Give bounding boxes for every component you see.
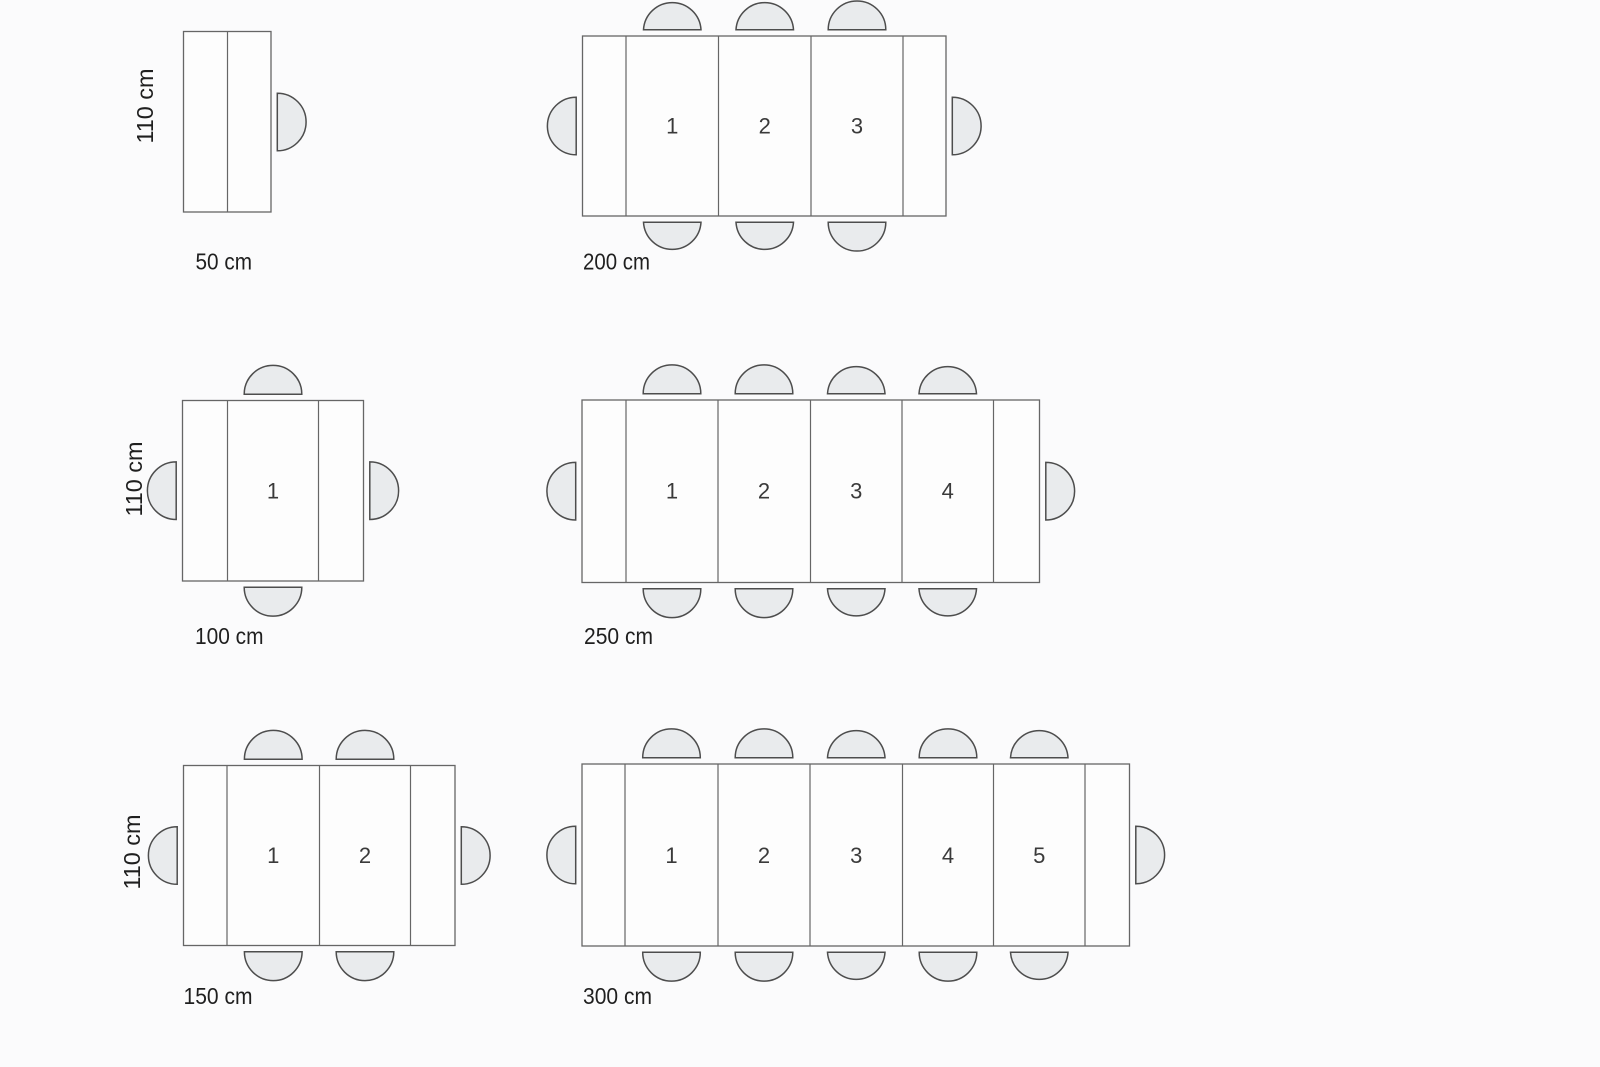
svg-text:200 cm: 200 cm bbox=[583, 249, 650, 275]
svg-text:1: 1 bbox=[666, 114, 678, 139]
svg-text:4: 4 bbox=[942, 843, 954, 868]
svg-text:250 cm: 250 cm bbox=[584, 623, 653, 649]
svg-text:1: 1 bbox=[267, 479, 279, 504]
svg-text:3: 3 bbox=[850, 843, 862, 868]
svg-text:1: 1 bbox=[665, 843, 677, 868]
svg-text:4: 4 bbox=[942, 479, 954, 504]
svg-text:110 cm: 110 cm bbox=[119, 815, 145, 890]
svg-text:2: 2 bbox=[759, 114, 771, 139]
svg-text:150 cm: 150 cm bbox=[184, 983, 253, 1009]
svg-text:3: 3 bbox=[850, 479, 862, 504]
svg-text:2: 2 bbox=[359, 843, 371, 868]
svg-text:100 cm: 100 cm bbox=[195, 623, 264, 649]
svg-text:110 cm: 110 cm bbox=[132, 69, 158, 144]
svg-text:1: 1 bbox=[267, 843, 279, 868]
svg-text:300 cm: 300 cm bbox=[583, 983, 652, 1009]
svg-text:110 cm: 110 cm bbox=[121, 442, 147, 517]
svg-text:2: 2 bbox=[758, 479, 770, 504]
svg-text:5: 5 bbox=[1033, 843, 1045, 868]
svg-text:2: 2 bbox=[758, 843, 770, 868]
svg-text:3: 3 bbox=[851, 114, 863, 139]
svg-text:1: 1 bbox=[666, 479, 678, 504]
svg-text:50 cm: 50 cm bbox=[196, 249, 253, 275]
